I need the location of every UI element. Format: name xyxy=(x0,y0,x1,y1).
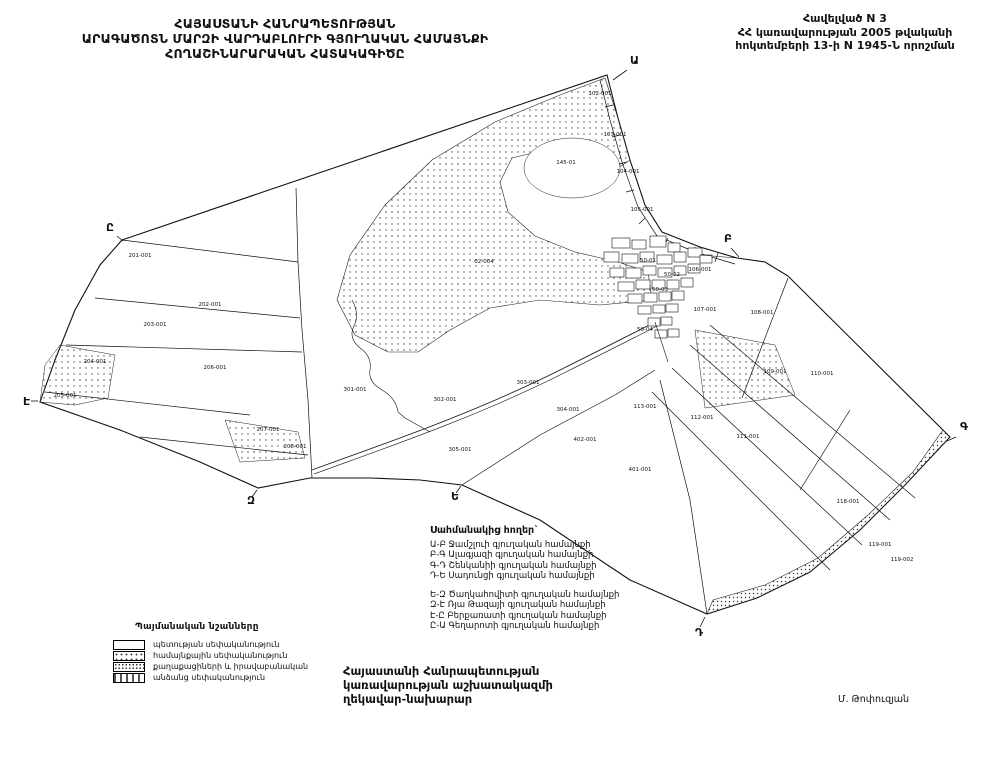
official-line3: ղեկավար-նախարար xyxy=(343,692,673,706)
parcel-label: 207-001 xyxy=(257,427,280,433)
annex-line3: հոկտեմբերի 13-ի N 1945-Ն որոշման xyxy=(695,39,995,53)
map-title-line2: ԱՐԱԳԱԾՈՏՆ ՄԱՐԶԻ ՎԱՐԴԱԲԼՈՒՐԻ ԳՅՈՒՂԱԿԱՆ ՀԱ… xyxy=(60,31,510,46)
parcel-label: 201-001 xyxy=(129,253,152,259)
stippled-patch-west xyxy=(40,345,115,405)
annex-line2: ՀՀ կառավարության 2005 թվականի xyxy=(695,26,995,40)
parcel-label: 105-001 xyxy=(631,207,654,213)
pattern-swatch-dots-dense xyxy=(113,662,145,672)
parcel-label: 109-001 xyxy=(764,369,787,375)
parcel-label: 204-001 xyxy=(84,359,107,365)
conventional-sign-row: քաղաքացիների և իրավաբանական xyxy=(113,661,373,672)
approving-official-block: Հայաստանի Հանրապետության կառավարության ա… xyxy=(343,664,673,706)
boundary-letter-Ա: Ա xyxy=(630,54,639,67)
boundary-letter-Է: Է xyxy=(23,395,30,408)
border-strip-southeast xyxy=(707,430,950,614)
pattern-swatch-dots xyxy=(113,651,145,661)
central-road xyxy=(312,322,657,474)
parcel-line-center xyxy=(462,370,655,485)
adjacent-lands-group1: Ա-Բ Ջամշլուի գյուղական համայնքիԲ-Գ Ալագյ… xyxy=(430,540,680,582)
annex-line1: Հավելված N 3 xyxy=(695,12,995,26)
official-line1: Հայաստանի Հանրապետության xyxy=(343,664,673,678)
parcel-label: 119-002 xyxy=(891,557,914,563)
conventional-signs-rows: պետության սեփականությունհամայնքային սեփա… xyxy=(113,639,373,683)
conventional-sign-label: քաղաքացիների և իրավաբանական xyxy=(153,661,308,672)
parcel-label: 02-004 xyxy=(474,259,494,265)
adjacent-land-item: Դ-Ե Սադունցի գյուղական համայնքի xyxy=(430,571,680,582)
map-title: ՀԱՅԱՍՏԱՆԻ ՀԱՆՐԱՊԵՏՈՒԹՅԱՆ ԱՐԱԳԱԾՈՏՆ ՄԱՐԶԻ… xyxy=(60,16,510,61)
parcel-label: 102-001 xyxy=(589,91,612,97)
parcel-label: 111-001 xyxy=(737,434,760,440)
boundary-letter-arrow xyxy=(117,236,123,241)
parcel-label: 206-001 xyxy=(204,365,227,371)
parcel-label: 118-001 xyxy=(837,499,860,505)
conventional-sign-row: անձանց սեփականություն xyxy=(113,672,373,683)
parcel-label: 203-001 xyxy=(144,322,167,328)
pattern-swatch-dashes xyxy=(113,673,145,683)
pattern-swatch-plain xyxy=(113,640,145,650)
parcel-label: 104-001 xyxy=(617,169,640,175)
stippled-area-north xyxy=(337,78,652,352)
parcel-label: 113-001 xyxy=(634,404,657,410)
boundary-letter-Զ: Զ xyxy=(247,494,255,507)
parcel-label: 205-001 xyxy=(54,393,77,399)
conventional-sign-label: համայնքային սեփականություն xyxy=(153,650,288,661)
parcel-label: 110-001 xyxy=(811,371,834,377)
parcel-label: 50-04 xyxy=(637,327,653,333)
parcel-label: 401-001 xyxy=(629,467,652,473)
conventional-sign-row: պետության սեփականություն xyxy=(113,639,373,650)
adjacent-lands-legend: Սահմանակից հողեր` Ա-Բ Ջամշլուի գյուղական… xyxy=(430,526,680,640)
conventional-sign-label: պետության սեփականություն xyxy=(153,639,280,650)
boundary-letter-arrow xyxy=(731,248,739,257)
clearing-area xyxy=(524,138,620,198)
parcel-label: 119-001 xyxy=(869,542,892,548)
map-title-line1: ՀԱՅԱՍՏԱՆԻ ՀԱՆՐԱՊԵՏՈՒԹՅԱՆ xyxy=(60,16,510,31)
adjacent-land-item: Ը-Ա Գեղարոտի գյուղական համայնքի xyxy=(430,621,680,632)
adjacent-lands-title: Սահմանակից հողեր` xyxy=(430,526,680,537)
parcel-label: 108-001 xyxy=(751,310,774,316)
parcel-label: 402-001 xyxy=(574,437,597,443)
adjacent-land-item: Բ-Գ Ալագյազի գյուղական համայնքի xyxy=(430,550,680,561)
conventional-sign-row: համայնքային սեփականություն xyxy=(113,650,373,661)
parcel-label: 50-03 xyxy=(652,287,668,293)
boundary-letter-Բ: Բ xyxy=(724,232,732,245)
parcel-label: 303-001 xyxy=(517,380,540,386)
adjacent-land-item: Ե-Զ Ծաղկահովիտի գյուղական համայնքի xyxy=(430,590,680,601)
parcel-label: 145-01 xyxy=(556,160,575,166)
parcel-label: 50-01 xyxy=(640,258,656,264)
parcel-label: 305-001 xyxy=(449,447,472,453)
parcel-label: 112-001 xyxy=(691,415,714,421)
parcel-label: 304-001 xyxy=(557,407,580,413)
conventional-signs-title: Պայմանական նշանները xyxy=(135,622,373,633)
conventional-signs-legend: Պայմանական նշանները պետության սեփականութ… xyxy=(113,622,373,683)
parcel-label: 50-02 xyxy=(664,272,680,278)
adjacent-lands-group2: Ե-Զ Ծաղկահովիտի գյուղական համայնքիԶ-Է Ռյ… xyxy=(430,590,680,632)
parcel-label: 208-001 xyxy=(284,444,307,450)
parcel-label: 302-001 xyxy=(434,397,457,403)
boundary-letter-Ը: Ը xyxy=(106,221,114,234)
adjacent-land-item: Է-Ը Բերքառատի գյուղական համայնքի xyxy=(430,611,680,622)
adjacent-land-item: Զ-Է Ռյա Թազայի գյուղական համայնքի xyxy=(430,600,680,611)
conventional-sign-label: անձանց սեփականություն xyxy=(153,672,265,683)
parcel-label: 103-001 xyxy=(604,132,627,138)
parcel-label: 106-001 xyxy=(689,267,712,273)
boundary-letter-arrow xyxy=(613,70,627,80)
parcel-label: 202-001 xyxy=(199,302,222,308)
adjacent-land-item: Գ-Դ Շենկանիի գյուղական համայնքի xyxy=(430,561,680,572)
boundary-letter-Գ: Գ xyxy=(960,420,969,433)
boundary-letter-Ե: Ե xyxy=(451,490,459,503)
adjacent-land-item: Ա-Բ Ջամշլուի գյուղական համայնքի xyxy=(430,540,680,551)
annex-reference: Հավելված N 3 ՀՀ կառավարության 2005 թվակա… xyxy=(695,12,995,53)
signature-name: Մ. Թոփուզյան xyxy=(838,694,909,705)
boundary-letter-Դ: Դ xyxy=(695,626,704,639)
parcel-lines-east xyxy=(652,278,915,614)
map-title-line3: ՀՈՂԱՇԻՆԱՐԱՐԱԿԱՆ ՀԱՏԱԿԱԳԻԾԸ xyxy=(60,46,510,61)
parcel-label: 301-001 xyxy=(344,387,367,393)
parcel-label: 107-001 xyxy=(694,307,717,313)
official-line2: կառավարության աշխատակազմի xyxy=(343,678,673,692)
